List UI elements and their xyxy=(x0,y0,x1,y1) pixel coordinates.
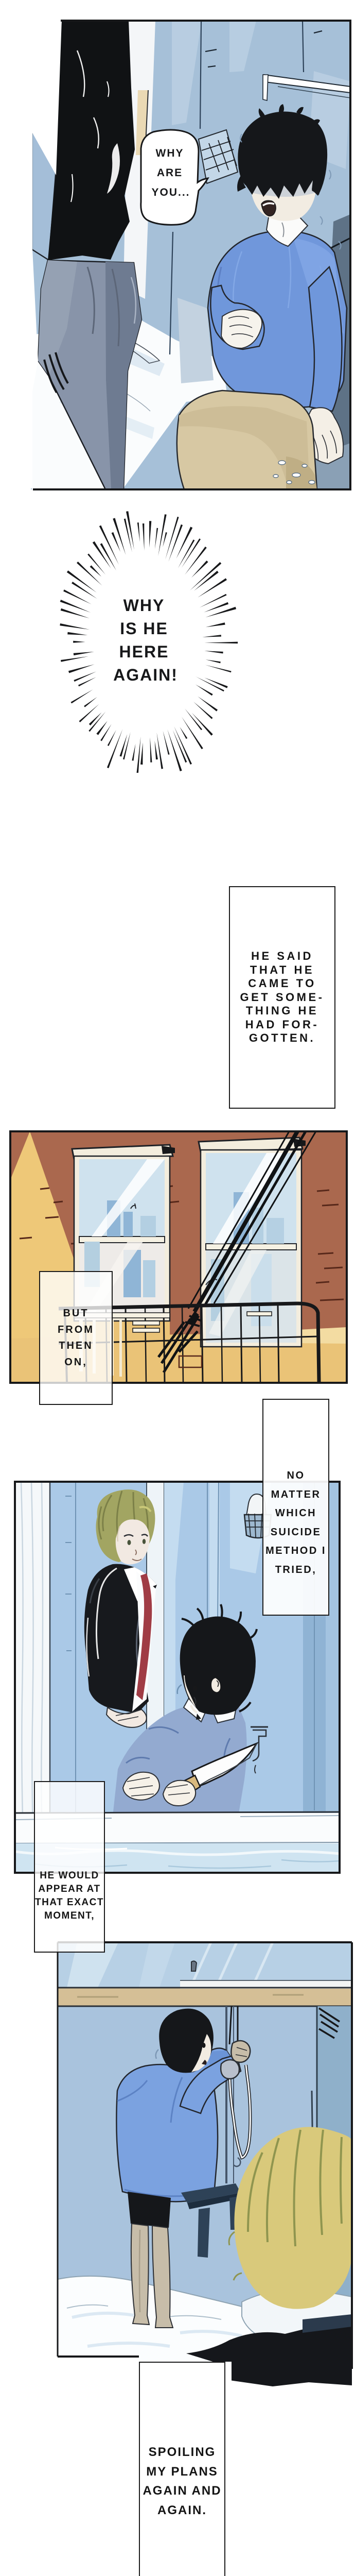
svg-text:ARE: ARE xyxy=(157,167,183,179)
svg-text:HERE: HERE xyxy=(119,642,169,661)
svg-text:AGAIN!: AGAIN! xyxy=(113,666,178,684)
svg-text:WHY: WHY xyxy=(156,147,184,159)
svg-text:IS HE: IS HE xyxy=(120,619,168,638)
svg-text:YOU...: YOU... xyxy=(151,187,190,198)
svg-text:WHY: WHY xyxy=(123,596,165,615)
